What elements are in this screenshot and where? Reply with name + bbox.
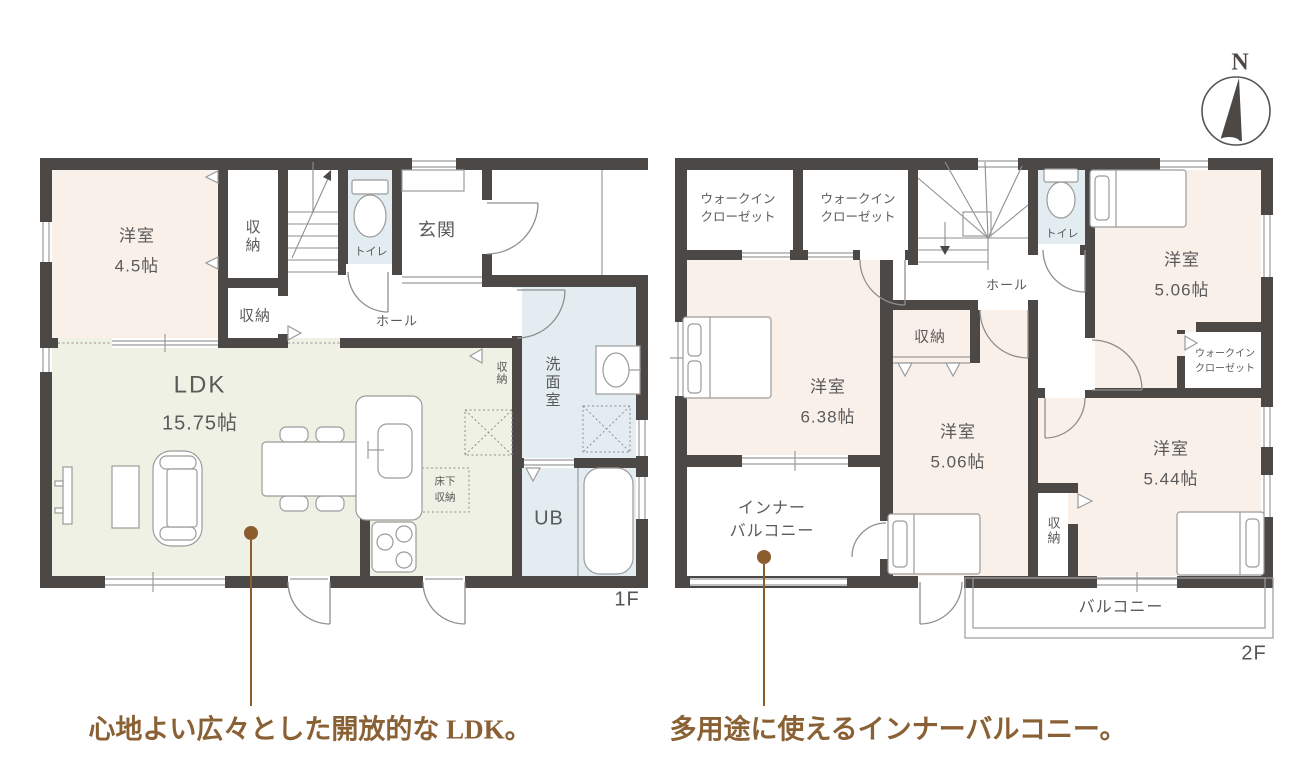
room-size: 5.06帖 [930,447,985,477]
bed-icon-1 [683,317,771,398]
floor-label-2f: 2F [1241,643,1266,666]
room-label-toilet-1f: トイレ [355,243,388,259]
room-label-inner-balcony: インナー バルコニー [730,497,815,543]
room-name: 洋室 [1143,434,1198,464]
room-label-closet-right-2f: 収納 [1044,516,1063,546]
label-line: クローゼット [700,208,775,226]
bed-icon-4 [1177,512,1264,575]
label-line: クローゼット [820,208,895,226]
sofa-icon [153,451,202,546]
kitchen-counter-icon [356,396,422,520]
room-label-youshitsu-center: 洋室 5.06帖 [930,417,985,477]
room-label-youshitsu-left: 洋室 6.38帖 [800,372,855,432]
room-label-genkan: 玄関 [418,216,456,242]
room-size: 4.5帖 [115,251,160,281]
floorplan-2f [670,158,1273,638]
room-name: 洋室 [800,372,855,402]
room-label-hall-2f: ホール [986,275,1028,294]
room-label-balcony: バルコニー [1079,593,1164,617]
room-size: 5.06帖 [1154,275,1209,305]
room-size: 5.44帖 [1143,464,1198,494]
room-label-ldk: LDK 15.75帖 [162,365,238,442]
bed-icon-2 [1090,170,1186,227]
sink-icon [596,346,641,394]
room-size: 15.75帖 [162,407,238,442]
label-line: ウォークイン [820,190,895,208]
room-label-youshitsu-tr: 洋室 5.06帖 [1154,245,1209,305]
floor-label-1f: 1F [614,589,639,612]
compass-north-label: N [1231,50,1248,77]
label-line: インナー [730,497,815,520]
coffee-table-icon [112,466,139,528]
caption-inner-balcony: 多用途に使えるインナーバルコニー。 [669,708,1126,747]
compass-icon [1202,77,1270,147]
toilet-icon-2f [1044,169,1078,218]
room-name: 洋室 [930,417,985,447]
label-line: ウォークイン [1195,348,1255,363]
label-line: クローゼット [1195,362,1255,377]
room-label-senmen: 洗面室 [542,356,563,410]
room-name: 洋室 [1154,245,1209,275]
stove-icon [372,522,416,572]
floorplan-page: 洋室 4.5帖 収納 収納 トイレ 玄関 ホール LDK 15.75帖 収納 洗… [0,0,1312,775]
room-label-closet-lower-1f: 収納 [239,305,271,326]
caption-ldk: 心地よい広々とした開放的な LDK。 [88,708,531,747]
room-label-yukashita: 床下収納 [433,474,457,506]
room-label-youshitsu-br: 洋室 5.44帖 [1143,434,1198,494]
label-line: ウォークイン [700,190,775,208]
room-label-wic2: ウォークイン クローゼット [820,190,895,226]
room-label-closet-small-1f: 収納 [493,361,509,385]
room-name: LDK [162,365,238,407]
shoe-cabinet-icon [402,170,464,191]
room-label-wic1: ウォークイン クローゼット [700,190,775,226]
room-label-hall-1f: ホール [376,311,418,330]
room-size: 6.38帖 [800,402,855,432]
toilet-icon-1f [352,180,388,237]
bed-icon-3 [888,514,980,574]
room-label-youshitsu-1f: 洋室 4.5帖 [115,221,160,281]
room-label-closet-upper-1f: 収納 [242,219,263,255]
room-label-wic3: ウォークイン クローゼット [1195,348,1255,377]
room-label-closet-center-2f: 収納 [914,326,946,347]
room-label-toilet-2f: トイレ [1046,225,1079,241]
bathtub-icon [578,468,633,576]
room-label-ub: UB [534,508,564,531]
label-line: バルコニー [730,520,815,543]
room-name: 洋室 [115,221,160,251]
